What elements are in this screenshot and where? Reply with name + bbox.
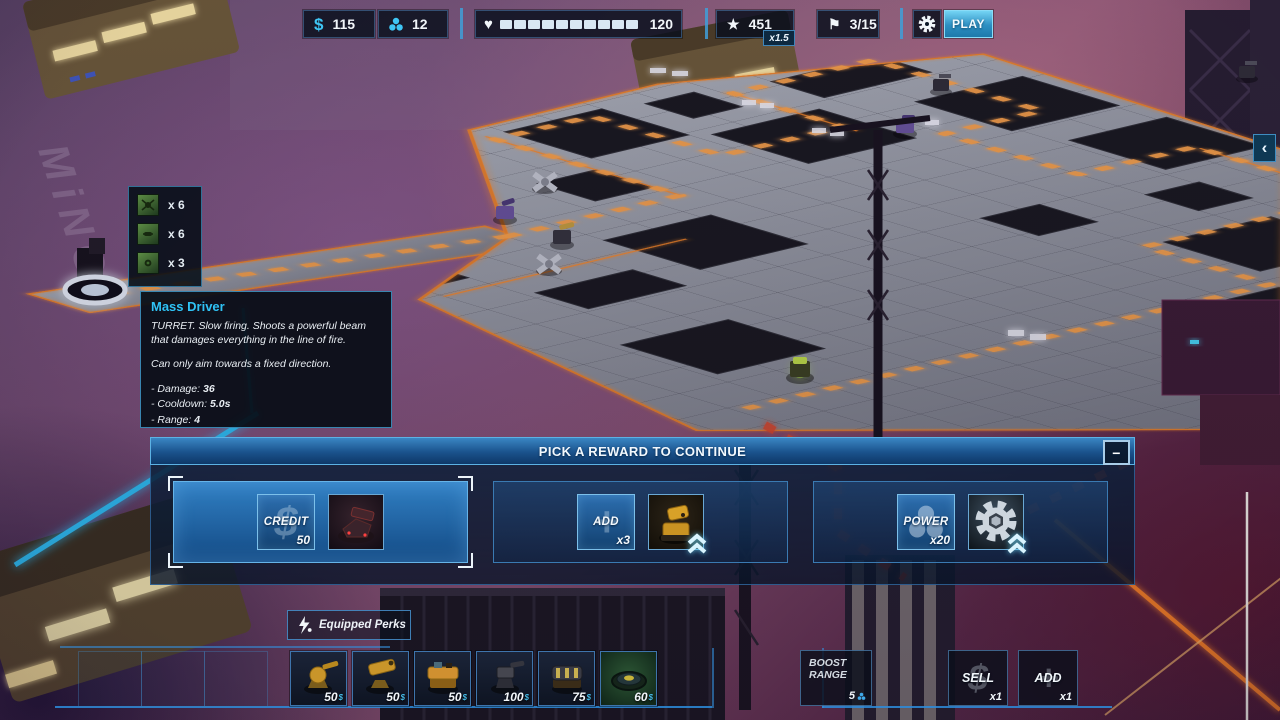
reward-amount: x3 (617, 533, 630, 547)
shop-price: 50$ (448, 690, 467, 704)
reward-amount: x20 (930, 533, 950, 547)
bottom-bar-line (822, 706, 1112, 708)
boost-range-button[interactable]: BOOST RANGE 5 (800, 650, 872, 706)
gear-reward-image (968, 494, 1024, 550)
equipped-perks-text: Equipped Perks (319, 619, 406, 631)
stat-damage: - Damage:36 (151, 382, 381, 398)
score-multiplier-badge: x1.5 (763, 30, 795, 46)
flag-icon: ⚑ (828, 17, 841, 31)
enemy-row: x 6 (137, 223, 201, 245)
upgrade-chevrons-icon (1005, 533, 1029, 555)
boost-range-line1: BOOST (809, 657, 871, 669)
credits-icon: $ (314, 16, 323, 33)
building-sign: MiNG (29, 138, 119, 291)
gear-icon (917, 14, 937, 34)
selection-corner (168, 476, 183, 491)
bottom-bar-line (60, 646, 390, 648)
health-segments (500, 20, 643, 29)
enemy-row: x 3 (137, 252, 201, 274)
tooltip-description: TURRET. Slow firing. Shoots a powerful b… (151, 320, 381, 348)
turret-reward-image (648, 494, 704, 550)
game-screen: MiNG (0, 0, 1280, 720)
dark-turret-icon (329, 495, 383, 549)
minimize-button[interactable]: − (1103, 440, 1130, 465)
heart-icon: ♥ (484, 17, 493, 32)
reward-card-credit[interactable]: $ CREDIT 50 (173, 481, 468, 563)
shop-turret-dark[interactable]: 100$ (476, 651, 533, 706)
reward-card-power[interactable]: POWER x20 (813, 481, 1108, 563)
shop-price: 60$ (634, 690, 653, 704)
shop-turret-cannon[interactable]: 50$ (290, 651, 347, 706)
add-reward-tile: + ADD x3 (577, 494, 635, 550)
reward-panel-header: PICK A REWARD TO CONTINUE − (150, 437, 1135, 465)
wave-counter: ⚑ 3/15 (817, 10, 879, 38)
tooltip-description-2: Can only aim towards a fixed direction. (151, 358, 381, 372)
enemy-row: x 6 (137, 194, 201, 216)
selection-corner (168, 553, 183, 568)
turret-reward-image (328, 494, 384, 550)
enemy-count: x 6 (168, 227, 185, 241)
shop-price: 50$ (386, 690, 405, 704)
enemy-count: x 3 (168, 256, 185, 270)
shop-turret-missile[interactable]: 50$ (352, 651, 409, 706)
sell-count: x1 (990, 691, 1002, 703)
wave-value: 3/15 (850, 16, 877, 32)
bottom-bar-divider (712, 648, 714, 708)
reward-panel-title: PICK A REWARD TO CONTINUE (539, 444, 746, 459)
tooltip-title: Mass Driver (151, 299, 381, 314)
lightning-icon (297, 616, 312, 634)
empty-slot (141, 651, 205, 707)
power-icon (388, 17, 404, 32)
enemy-icon (137, 252, 159, 274)
add-count: x1 (1060, 691, 1072, 703)
health-value: 120 (650, 16, 673, 32)
shop-price: 100$ (504, 690, 529, 704)
credit-reward-tile: $ CREDIT 50 (257, 494, 315, 550)
enemy-icon (137, 223, 159, 245)
empty-slot (204, 651, 268, 707)
selection-corner (458, 476, 473, 491)
shop-turret-pad[interactable]: 60$ (600, 651, 657, 706)
power-counter: 12 (378, 10, 448, 38)
hud-separator (460, 8, 463, 39)
enemy-preview-panel: x 6 x 6 x 3 (128, 186, 202, 287)
credits-value: 115 (332, 16, 355, 32)
truck (22, 0, 240, 100)
shop-price: 75$ (572, 690, 591, 704)
turret-tooltip: Mass Driver TURRET. Slow firing. Shoots … (140, 291, 392, 428)
hud-separator (705, 8, 708, 39)
add-button[interactable]: + ADD x1 (1018, 650, 1078, 706)
power-icon (857, 692, 866, 701)
stat-range: - Range:4 (151, 413, 381, 429)
shop-turret-heavy[interactable]: 50$ (414, 651, 471, 706)
boost-range-line2: RANGE (809, 669, 871, 681)
upgrade-chevrons-icon (685, 533, 709, 555)
hud-separator (900, 8, 903, 39)
health-bar: ♥ 120 (475, 10, 682, 38)
reward-amount: 50 (297, 533, 310, 547)
equipped-perks-label: Equipped Perks (287, 610, 411, 640)
star-icon: ★ (727, 17, 740, 31)
selection-corner (458, 553, 473, 568)
settings-button[interactable] (913, 10, 941, 38)
reward-card-add-turret[interactable]: + ADD x3 (493, 481, 788, 563)
tooltip-stats: - Damage:36 - Cooldown:5.0s - Range:4 (151, 382, 381, 429)
power-reward-tile: POWER x20 (897, 494, 955, 550)
stat-cooldown: - Cooldown:5.0s (151, 397, 381, 413)
credits-counter: $ 115 (303, 10, 375, 38)
sidebar-collapse-button[interactable]: ‹ (1253, 134, 1276, 162)
play-button[interactable]: PLAY (944, 10, 993, 38)
boost-range-cost: 5 (849, 690, 866, 703)
enemy-icon (137, 194, 159, 216)
shop-turret-coil[interactable]: 75$ (538, 651, 595, 706)
power-value: 12 (412, 16, 428, 32)
empty-slot (78, 651, 142, 707)
sell-button[interactable]: $ SELL x1 (948, 650, 1008, 706)
enemy-count: x 6 (168, 198, 185, 212)
shop-price: 50$ (324, 690, 343, 704)
